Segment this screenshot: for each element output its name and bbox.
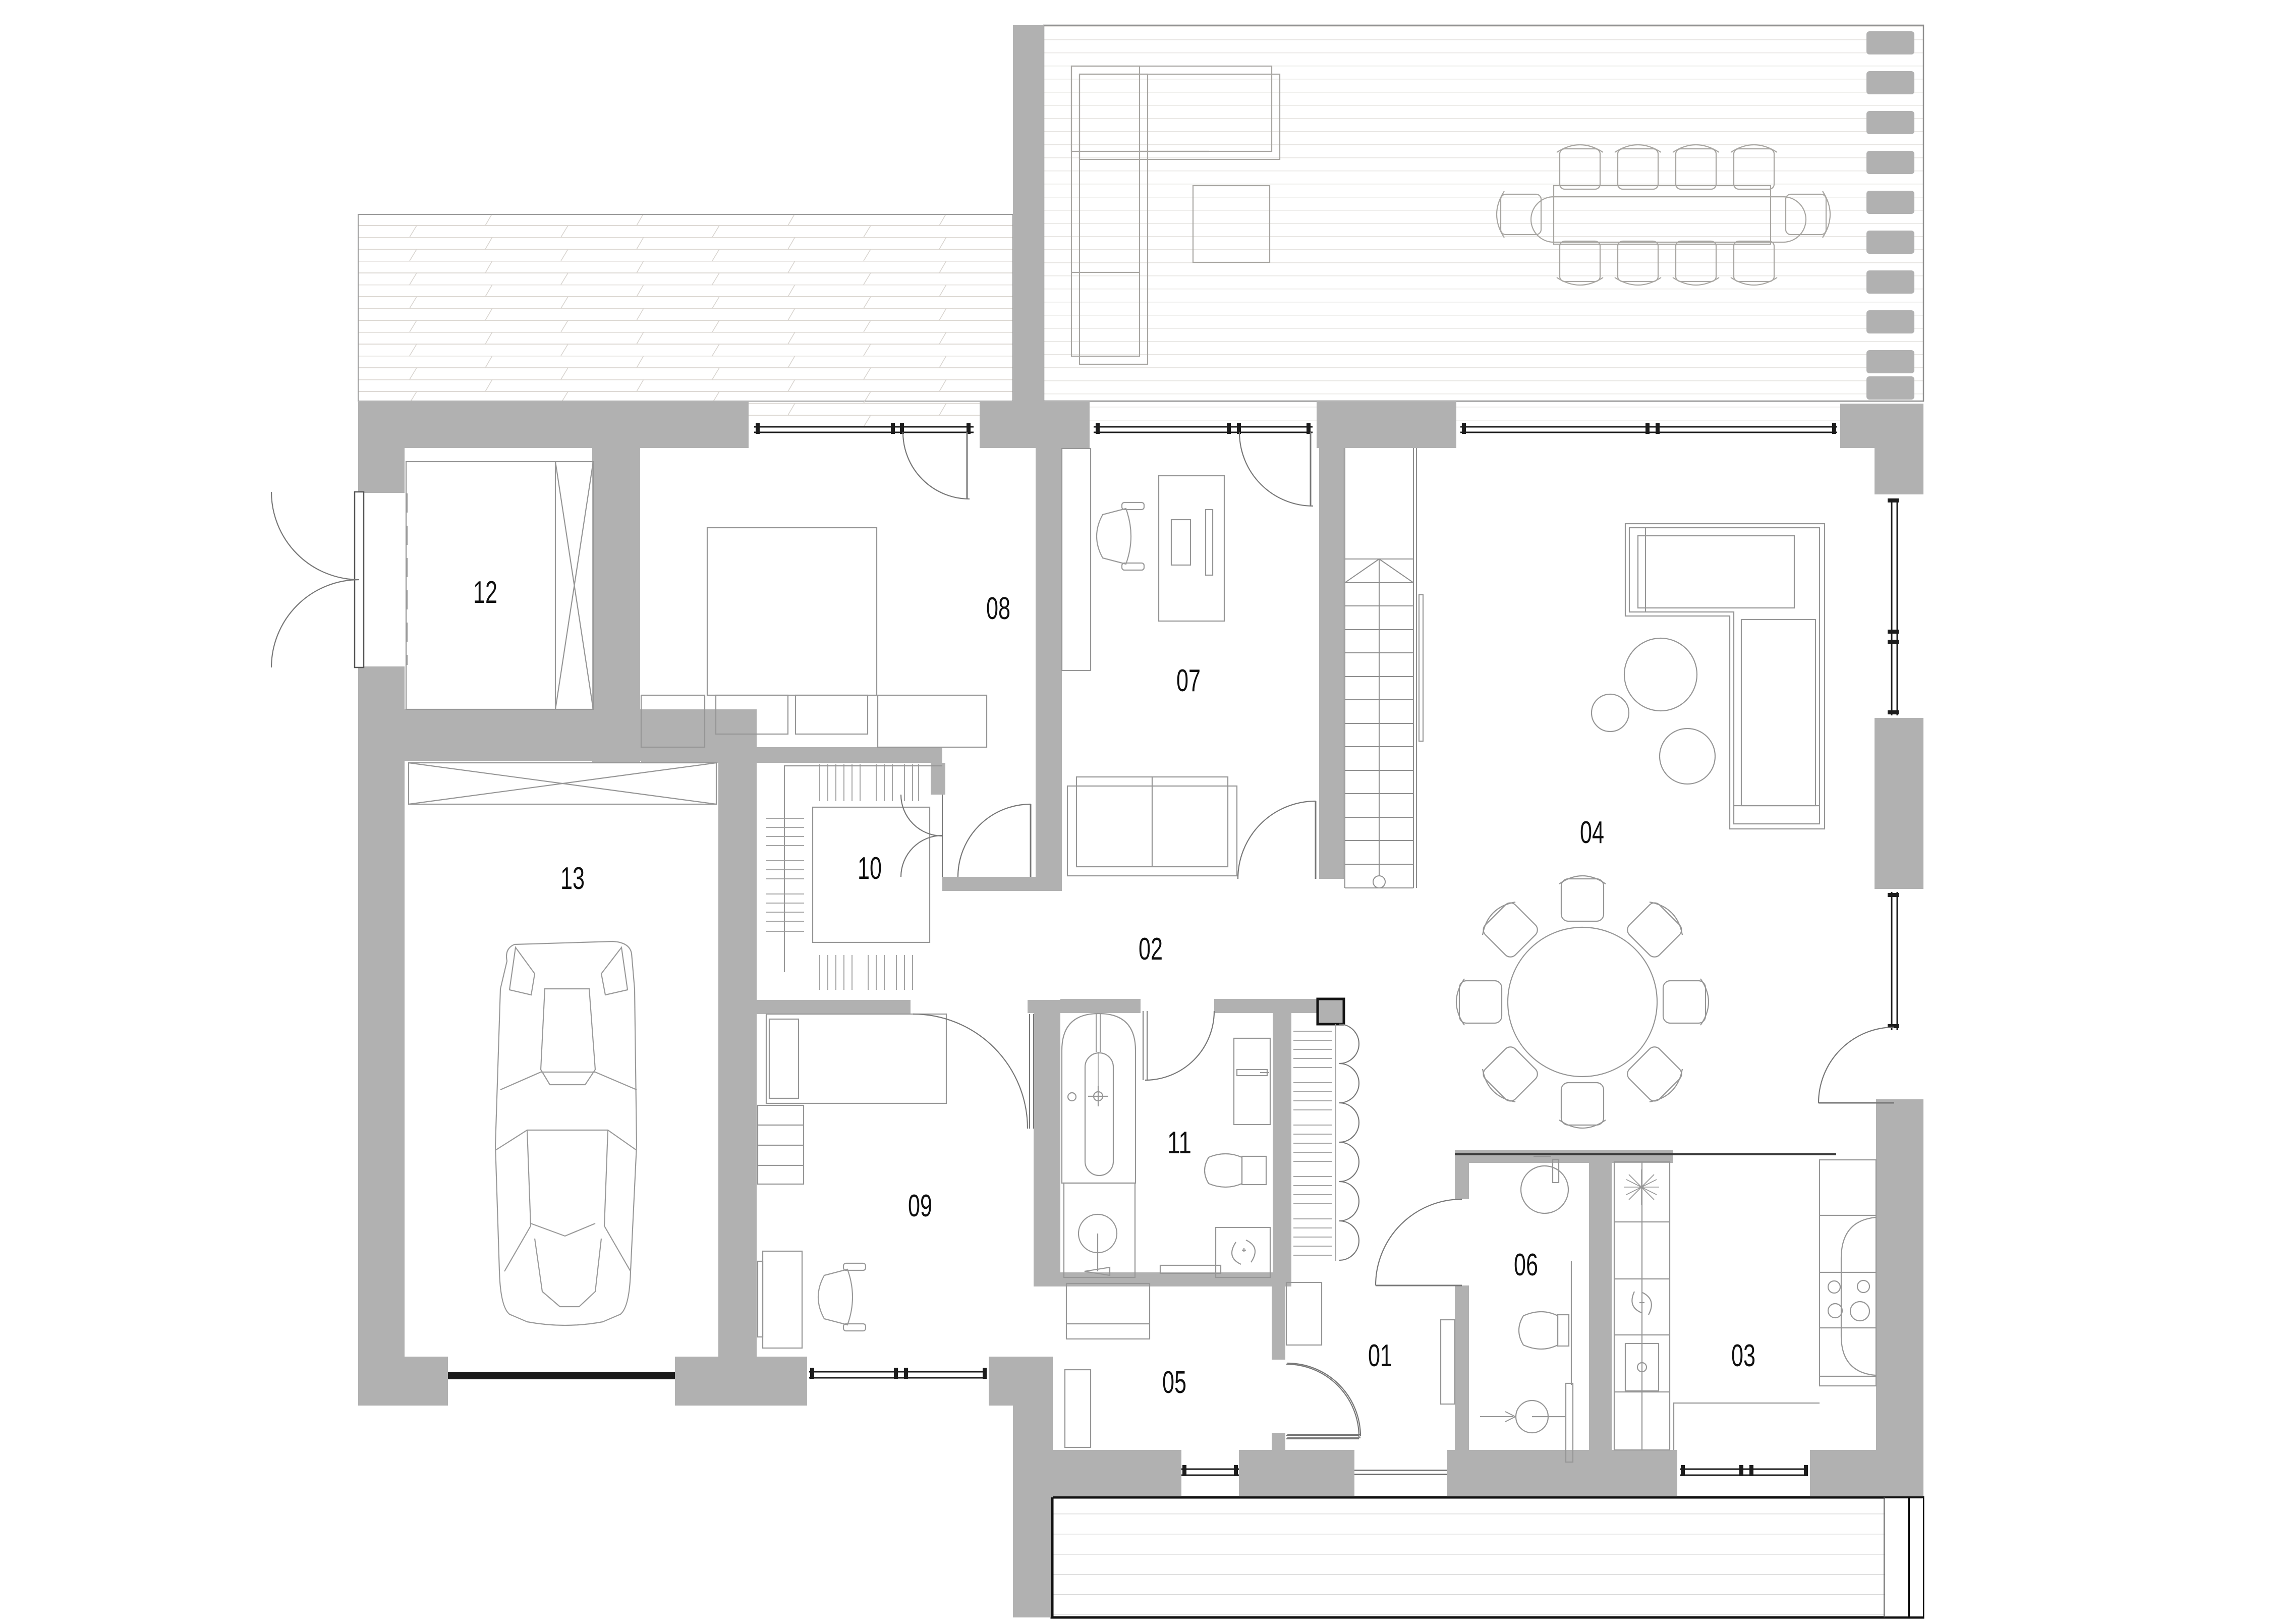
svg-text:07: 07 — [1176, 663, 1201, 698]
svg-text:11: 11 — [1167, 1126, 1191, 1160]
svg-text:01: 01 — [1368, 1338, 1392, 1373]
svg-text:09: 09 — [908, 1189, 932, 1223]
svg-text:08: 08 — [986, 591, 1010, 626]
svg-text:06: 06 — [1514, 1248, 1538, 1282]
svg-text:10: 10 — [858, 851, 882, 886]
svg-text:03: 03 — [1731, 1338, 1755, 1373]
svg-text:02: 02 — [1139, 932, 1163, 967]
svg-text:05: 05 — [1162, 1365, 1186, 1400]
svg-text:12: 12 — [473, 575, 497, 610]
svg-text:04: 04 — [1580, 815, 1604, 850]
svg-text:13: 13 — [560, 861, 585, 896]
